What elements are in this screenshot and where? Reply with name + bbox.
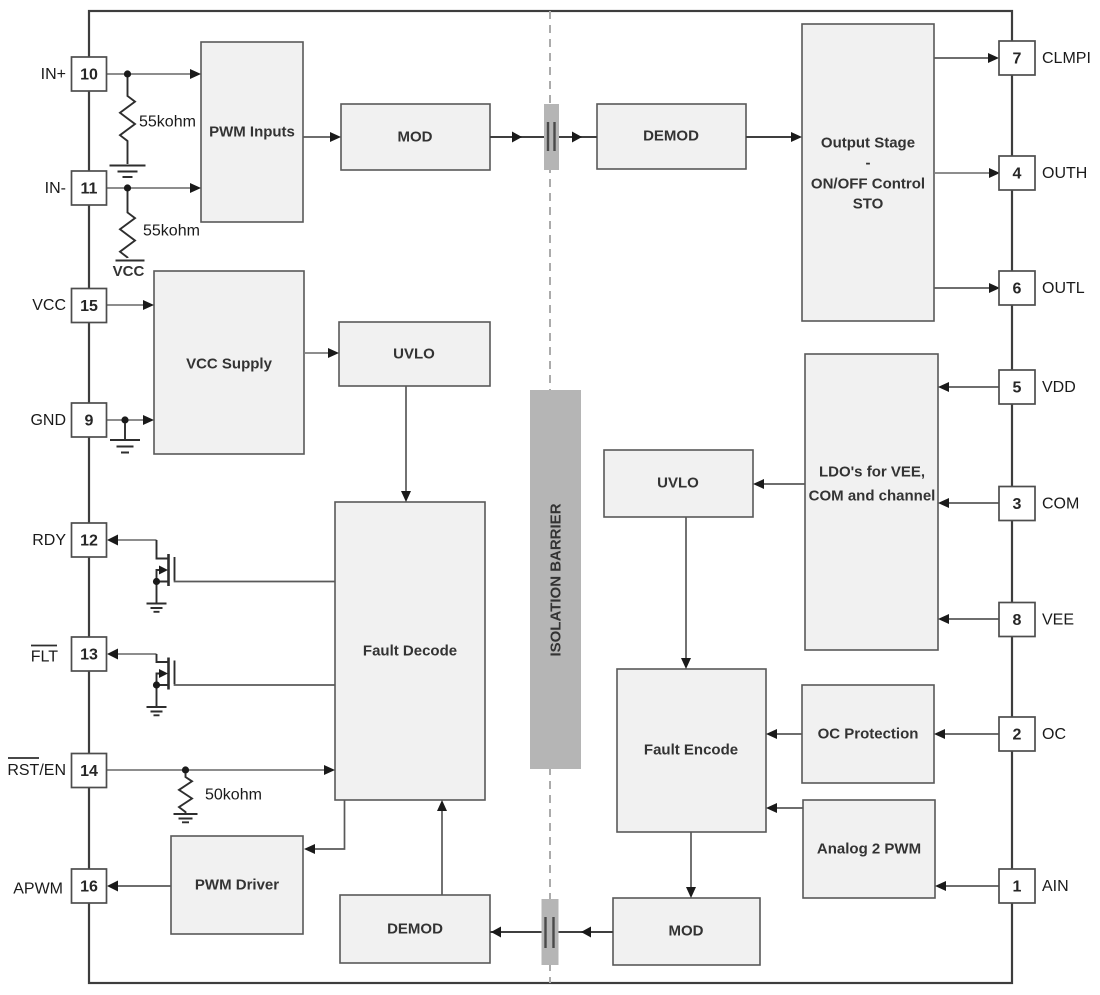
svg-text:2: 2 bbox=[1013, 727, 1022, 744]
svg-text:10: 10 bbox=[80, 67, 98, 84]
svg-text:OC: OC bbox=[1042, 726, 1066, 743]
svg-text:PWM Inputs: PWM Inputs bbox=[209, 124, 295, 141]
svg-text:VCC Supply: VCC Supply bbox=[186, 356, 272, 373]
svg-text:VEE: VEE bbox=[1042, 612, 1074, 629]
svg-text:16: 16 bbox=[80, 879, 98, 896]
svg-text:RST/EN: RST/EN bbox=[7, 762, 66, 779]
svg-text:Fault Encode: Fault Encode bbox=[644, 742, 738, 759]
svg-text:LDO's for VEE,: LDO's for VEE, bbox=[819, 464, 925, 481]
svg-text:UVLO: UVLO bbox=[657, 475, 699, 492]
svg-text:COM and channel: COM and channel bbox=[809, 488, 936, 505]
svg-text:APWM: APWM bbox=[13, 881, 63, 898]
svg-text:DEMOD: DEMOD bbox=[643, 128, 699, 145]
svg-text:VDD: VDD bbox=[1042, 379, 1076, 396]
svg-text:OC Protection: OC Protection bbox=[818, 726, 919, 743]
svg-text:MOD: MOD bbox=[398, 129, 433, 146]
svg-text:CLMPI: CLMPI bbox=[1042, 50, 1091, 67]
svg-text:DEMOD: DEMOD bbox=[387, 921, 443, 938]
svg-text:6: 6 bbox=[1013, 281, 1022, 298]
svg-text:55kohm: 55kohm bbox=[139, 114, 196, 131]
svg-text:12: 12 bbox=[80, 533, 98, 550]
svg-text:15: 15 bbox=[80, 298, 98, 315]
svg-text:4: 4 bbox=[1013, 166, 1022, 183]
svg-text:14: 14 bbox=[80, 763, 98, 780]
svg-text:50kohm: 50kohm bbox=[205, 787, 262, 804]
svg-text:IN-: IN- bbox=[45, 180, 66, 197]
svg-text:9: 9 bbox=[85, 413, 94, 430]
svg-text:ON/OFF Control: ON/OFF Control bbox=[811, 176, 925, 193]
svg-text:5: 5 bbox=[1013, 380, 1022, 397]
svg-text:UVLO: UVLO bbox=[393, 346, 435, 363]
svg-text:STO: STO bbox=[853, 196, 884, 213]
svg-text:3: 3 bbox=[1013, 496, 1022, 513]
svg-text:IN+: IN+ bbox=[41, 66, 66, 83]
svg-text:AIN: AIN bbox=[1042, 878, 1069, 895]
svg-text:COM: COM bbox=[1042, 496, 1079, 513]
svg-text:13: 13 bbox=[80, 647, 98, 664]
svg-text:VCC: VCC bbox=[113, 263, 145, 280]
svg-text:Fault Decode: Fault Decode bbox=[363, 643, 457, 660]
svg-text:OUTL: OUTL bbox=[1042, 280, 1085, 297]
svg-text:55kohm: 55kohm bbox=[143, 223, 200, 240]
svg-text:VCC: VCC bbox=[32, 297, 66, 314]
svg-text:Analog 2 PWM: Analog 2 PWM bbox=[817, 841, 921, 858]
svg-text:Output Stage: Output Stage bbox=[821, 135, 915, 152]
svg-text:ISOLATION BARRIER: ISOLATION BARRIER bbox=[548, 503, 565, 656]
svg-text:OUTH: OUTH bbox=[1042, 165, 1087, 182]
svg-text:7: 7 bbox=[1013, 51, 1022, 68]
svg-text:11: 11 bbox=[81, 181, 98, 198]
svg-text:FLT: FLT bbox=[31, 649, 58, 666]
svg-text:RDY: RDY bbox=[32, 532, 66, 549]
svg-text:GND: GND bbox=[30, 412, 66, 429]
svg-text:1: 1 bbox=[1013, 879, 1022, 896]
svg-text:-: - bbox=[866, 155, 871, 172]
svg-text:PWM Driver: PWM Driver bbox=[195, 877, 279, 894]
svg-text:8: 8 bbox=[1013, 612, 1022, 629]
svg-text:MOD: MOD bbox=[669, 923, 704, 940]
